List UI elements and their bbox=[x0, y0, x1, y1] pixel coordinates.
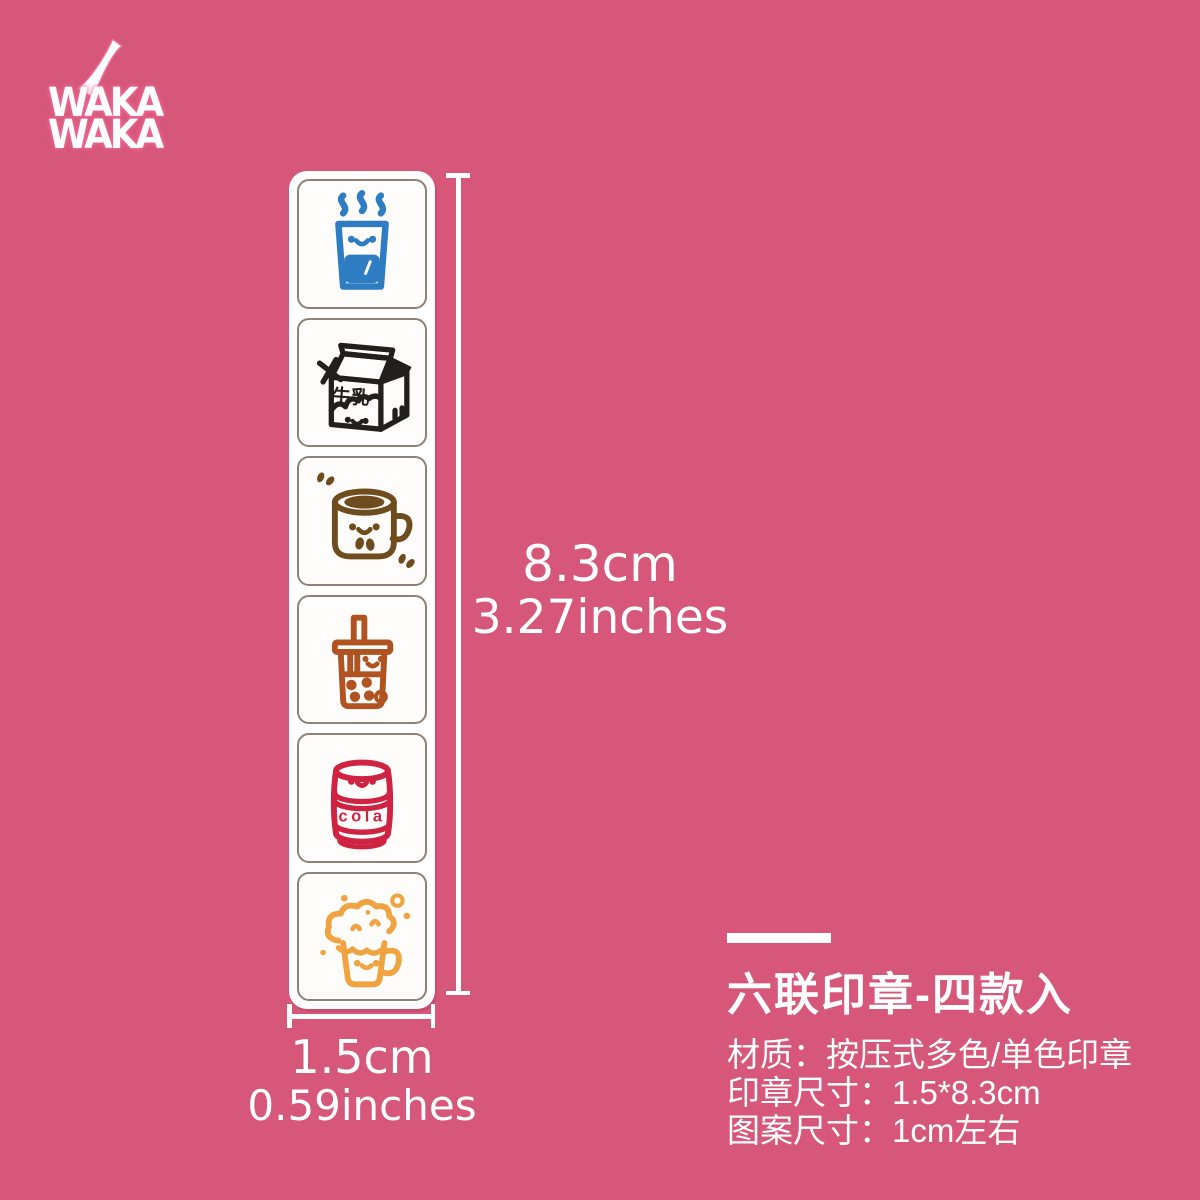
spec-pattern-size: 图案尺寸：1cm左右 bbox=[727, 1112, 1177, 1150]
width-dimension-right-tick bbox=[431, 1004, 436, 1028]
product-specs: 材质：按压式多色/单色印章 印章尺寸：1.5*8.3cm 图案尺寸：1cm左右 bbox=[727, 1036, 1177, 1150]
spec-material: 材质：按压式多色/单色印章 bbox=[727, 1036, 1177, 1074]
stamp-cell bbox=[297, 179, 427, 309]
hot-water-glass-stamp-icon bbox=[303, 185, 421, 303]
product-image-canvas: WAKA WAKA bbox=[0, 0, 1200, 1200]
height-dimension-bottom-cap bbox=[446, 991, 470, 996]
stamp-cell: 牛乳 bbox=[297, 318, 427, 448]
cola-can-label: cola bbox=[338, 807, 385, 825]
width-cm-label: 1.5cm bbox=[232, 1032, 492, 1082]
stamp-cell: cola bbox=[297, 733, 427, 863]
width-inches-label: 0.59inches bbox=[232, 1082, 492, 1130]
brand-logo: WAKA WAKA bbox=[48, 36, 188, 156]
milk-carton-stamp-icon: 牛乳 bbox=[303, 323, 421, 441]
stamp-cell bbox=[297, 872, 427, 1002]
product-title: 六联印章-四款入 bbox=[727, 968, 1177, 1022]
stamp-strip: 牛乳 bbox=[289, 171, 435, 1009]
beer-mug-stamp-icon bbox=[303, 877, 421, 995]
coffee-mug-stamp-icon bbox=[303, 462, 421, 580]
width-dimension-bar bbox=[289, 1014, 433, 1019]
height-cm-label: 8.3cm bbox=[455, 536, 745, 592]
height-labels: 8.3cm 3.27inches bbox=[455, 536, 745, 644]
cola-can-stamp-icon: cola bbox=[303, 739, 421, 857]
product-info: 六联印章-四款入 材质：按压式多色/单色印章 印章尺寸：1.5*8.3cm 图案… bbox=[727, 933, 1177, 1150]
height-inches-label: 3.27inches bbox=[455, 592, 745, 644]
logo-text-line2: WAKA bbox=[48, 118, 188, 153]
stamp-cell bbox=[297, 595, 427, 725]
spec-stamp-size: 印章尺寸：1.5*8.3cm bbox=[727, 1074, 1177, 1112]
width-dimension-line bbox=[287, 1003, 435, 1029]
stamp-cell bbox=[297, 456, 427, 586]
milk-carton-label: 牛乳 bbox=[331, 384, 370, 409]
bubble-tea-stamp-icon bbox=[303, 600, 421, 718]
title-dash bbox=[727, 933, 831, 943]
width-labels: 1.5cm 0.59inches bbox=[232, 1032, 492, 1130]
